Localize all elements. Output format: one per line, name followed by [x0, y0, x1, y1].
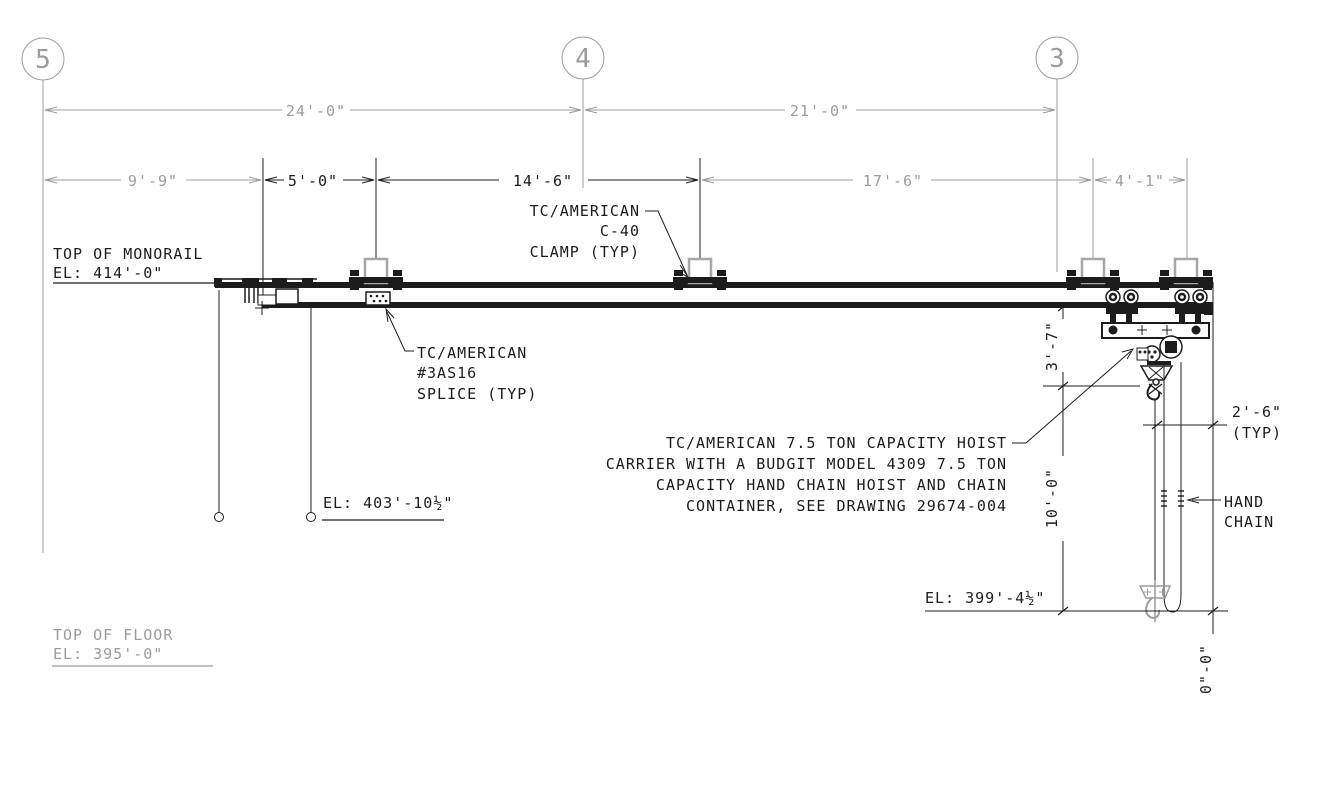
- hoist-note-leader-line: [1012, 351, 1131, 443]
- svg-text:CLAMP (TYP): CLAMP (TYP): [530, 243, 640, 261]
- svg-text:TOP OF FLOOR: TOP OF FLOOR: [53, 626, 173, 644]
- lower-hook: [1140, 580, 1170, 622]
- grid-bubble-4: 4: [562, 37, 604, 188]
- svg-text:10'-0": 10'-0": [1043, 468, 1061, 528]
- beam-bottom-flange: [262, 302, 1213, 308]
- dim-3-7: 3'-7": [1043, 303, 1068, 386]
- svg-text:CHAIN: CHAIN: [1224, 513, 1274, 531]
- trolley-wheel: [1193, 290, 1207, 304]
- svg-text:#3AS16: #3AS16: [417, 364, 477, 382]
- svg-text:HAND: HAND: [1224, 493, 1264, 511]
- svg-text:(TYP): (TYP): [1232, 424, 1282, 442]
- hand-chain-loop: [1161, 362, 1184, 612]
- svg-text:0"-0": 0"-0": [1197, 644, 1215, 694]
- hanger-drop-rods: [215, 290, 316, 522]
- hoist-body: [1137, 336, 1182, 365]
- svg-text:TOP OF MONORAIL: TOP OF MONORAIL: [53, 245, 203, 263]
- grid-label-3: 3: [1049, 44, 1065, 74]
- svg-text:2'-6": 2'-6": [1232, 403, 1282, 421]
- svg-text:EL: 395'-0": EL: 395'-0": [53, 645, 163, 663]
- splice-callout: TC/AMERICAN #3AS16 SPLICE (TYP): [386, 309, 537, 403]
- grid-label-5: 5: [35, 45, 51, 75]
- svg-text:3'-7": 3'-7": [1043, 321, 1061, 371]
- svg-text:9'-9": 9'-9": [128, 172, 178, 190]
- trolley-wheel: [1175, 290, 1189, 304]
- svg-text:CARRIER WITH A BUDGIT MODEL 43: CARRIER WITH A BUDGIT MODEL 4309 7.5 TON: [606, 455, 1007, 473]
- splice-leader-arrow: [386, 309, 394, 322]
- splice-plate: [366, 292, 390, 305]
- upper-hook-block: [1141, 366, 1172, 400]
- dim-5-0: 5'-0": [265, 172, 374, 190]
- svg-text:CONTAINER, SEE DRAWING 29674-0: CONTAINER, SEE DRAWING 29674-004: [686, 497, 1007, 515]
- svg-text:EL: 399'-4½": EL: 399'-4½": [925, 589, 1045, 607]
- svg-text:SPLICE (TYP): SPLICE (TYP): [417, 385, 537, 403]
- svg-text:5'-0": 5'-0": [288, 172, 338, 190]
- grid-bubble-5: 5: [22, 38, 64, 553]
- svg-text:EL: 414'-0": EL: 414'-0": [53, 264, 163, 282]
- grid-label-4: 4: [575, 44, 591, 74]
- svg-text:24'-0": 24'-0": [286, 102, 346, 120]
- dim-4-1: 4'-1": [1095, 172, 1185, 190]
- el-399-label: EL: 399'-4½": [925, 589, 1228, 615]
- hand-chain-callout: HAND CHAIN: [1188, 493, 1274, 531]
- grid-bubble-3: 3: [1036, 37, 1078, 272]
- svg-text:14'-6": 14'-6": [513, 172, 573, 190]
- monorail-elevation-drawing: 5 4 3 24'-0" 21'-0" 9'-9" 5: [0, 0, 1320, 793]
- svg-text:TC/AMERICAN: TC/AMERICAN: [530, 202, 640, 220]
- clamp-callout: TC/AMERICAN C-40 CLAMP (TYP): [530, 202, 688, 277]
- dim-0-0: 0"-0": [1197, 611, 1215, 694]
- splice-leader-line: [387, 312, 414, 351]
- svg-text:CAPACITY HAND CHAIN HOIST AND: CAPACITY HAND CHAIN HOIST AND CHAIN: [656, 476, 1007, 494]
- svg-text:TC/AMERICAN: TC/AMERICAN: [417, 344, 527, 362]
- top-of-monorail-label: TOP OF MONORAIL EL: 414'-0": [53, 245, 214, 283]
- svg-text:4'-1": 4'-1": [1115, 172, 1165, 190]
- svg-text:C-40: C-40: [600, 222, 640, 240]
- trolley-wheel: [1106, 290, 1120, 304]
- trolley-wheel: [1124, 290, 1138, 304]
- svg-text:21'-0": 21'-0": [790, 102, 850, 120]
- dim-21-0: 21'-0": [585, 102, 1055, 120]
- el-403-label: EL: 403'-10½": [322, 494, 453, 520]
- dim-14-6: 14'-6": [378, 172, 698, 190]
- svg-text:EL: 403'-10½": EL: 403'-10½": [323, 494, 453, 512]
- svg-text:17'-6": 17'-6": [863, 172, 923, 190]
- top-of-floor-label: TOP OF FLOOR EL: 395'-0": [52, 626, 213, 666]
- dim-24-0: 24'-0": [45, 102, 581, 120]
- dim-9-9: 9'-9": [45, 172, 261, 190]
- svg-text:TC/AMERICAN 7.5 TON CAPACITY H: TC/AMERICAN 7.5 TON CAPACITY HOIST: [666, 434, 1007, 452]
- dim-17-6: 17'-6": [702, 172, 1091, 190]
- hoist-carrier: [1102, 290, 1209, 338]
